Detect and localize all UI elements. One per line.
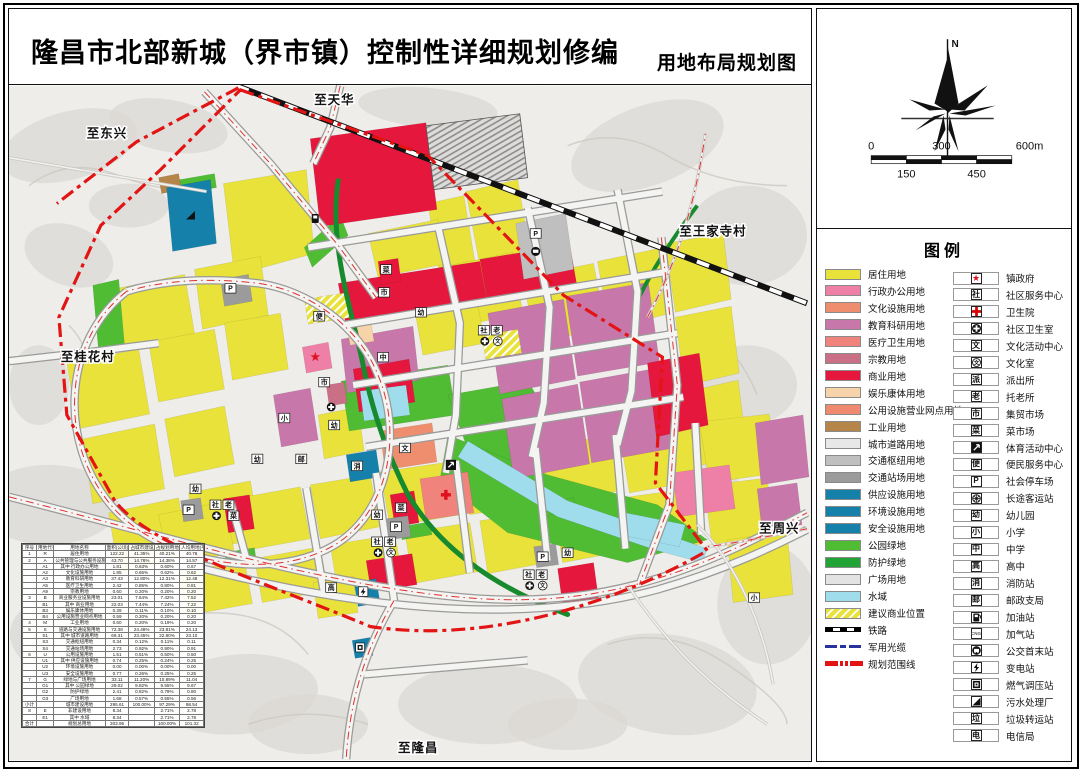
legend-label: 娱乐康体用地 <box>868 386 925 400</box>
legend-label: 规划范围线 <box>868 657 916 671</box>
svg-text:老: 老 <box>492 326 500 335</box>
legend-facility-社区服务中心: 社社区服务中心 <box>953 288 1063 302</box>
scale-label: 450 <box>967 169 985 181</box>
legend-swatch <box>825 421 861 432</box>
legend-label: 行政办公用地 <box>868 284 925 298</box>
svg-text:便: 便 <box>316 312 324 321</box>
map-marker-幼: 幼 <box>562 548 573 557</box>
legend-facility-消防站: 消消防站 <box>953 576 1035 590</box>
legend-label: 派出所 <box>1006 373 1035 387</box>
污水处理厂-icon <box>953 695 999 708</box>
legend-title: 图例 <box>817 237 1071 261</box>
legend-facility-加油站: 加油站 <box>953 610 1035 624</box>
map-marker-sport <box>446 460 455 469</box>
map-marker-P: P <box>537 552 548 561</box>
legend-facility-公交首末站: 公交首末站 <box>953 644 1054 658</box>
map-marker-消: 消 <box>352 461 363 470</box>
legend-swatch <box>825 302 861 313</box>
legend-swatch <box>825 285 861 296</box>
map-marker-老: 老 <box>385 537 396 546</box>
svg-text:小: 小 <box>280 413 288 422</box>
legend-facility-镇政府: ★镇政府 <box>953 271 1035 285</box>
legend-item-环境设施用地: 环境设施用地 <box>825 504 925 518</box>
map-marker-文: 文 <box>493 337 502 346</box>
legend-facility-文化室: 文文化室 <box>953 356 1035 370</box>
legend-label: 交通站场用地 <box>868 470 925 484</box>
map-marker-bus <box>531 247 540 256</box>
legend-item-防护绿地: 防护绿地 <box>825 555 906 569</box>
legend-swatch <box>825 336 861 347</box>
road-label: 至王家寺村 <box>679 223 746 238</box>
svg-text:消: 消 <box>354 461 361 470</box>
svg-text:P: P <box>186 507 191 514</box>
legend-facility-集贸市场: 市集贸市场 <box>953 407 1044 421</box>
map-marker-老: 老 <box>223 500 234 509</box>
planning-map-sheet: 隆昌市北部新城（界市镇）控制性详细规划修编 用地布局规划图 PPPPP幼幼幼幼幼… <box>0 0 1080 770</box>
派出所-icon: 派 <box>953 373 999 386</box>
legend-swatch <box>825 387 861 398</box>
legend-swatch <box>825 404 861 415</box>
svg-text:幼: 幼 <box>254 454 261 463</box>
长途客运站-icon <box>953 492 999 505</box>
集贸市场-icon: 市 <box>953 407 999 420</box>
legend-item-教育科研用地: 教育科研用地 <box>825 318 925 332</box>
legend-label: 中学 <box>1006 542 1025 556</box>
legend-swatch <box>825 624 861 635</box>
legend-swatch <box>825 353 861 364</box>
map-marker-oplus <box>212 511 221 520</box>
legend-label: 消防站 <box>1006 576 1035 590</box>
north-label: N <box>952 39 959 50</box>
svg-text:邮: 邮 <box>298 454 305 463</box>
map-marker-便: 便 <box>314 312 325 321</box>
legend-item-铁路: 铁路 <box>825 623 887 637</box>
scale-label: 150 <box>897 169 915 181</box>
文化活动中心-icon: 文 <box>953 339 999 352</box>
legend-label: 水域 <box>868 589 887 603</box>
table-header: 占城市建设用地比例(%) <box>129 545 154 551</box>
legend-label: 污水处理厂 <box>1006 695 1054 709</box>
map-marker-邮: 邮 <box>296 454 307 463</box>
legend-swatch <box>825 438 861 449</box>
map-marker-P: P <box>530 229 541 238</box>
map-marker-社: 社 <box>210 500 221 509</box>
legend-label: 工业用地 <box>868 420 906 434</box>
legend-facility-污水处理厂: 污水处理厂 <box>953 695 1054 709</box>
map-marker-文: 文 <box>400 443 411 452</box>
svg-text:文: 文 <box>495 337 501 345</box>
legend-item-城市道路用地: 城市道路用地 <box>825 437 925 451</box>
map-marker-P: P <box>225 284 236 293</box>
map-marker-社: 社 <box>372 537 383 546</box>
legend-item-娱乐康体用地: 娱乐康体用地 <box>825 386 925 400</box>
体育活动中心-icon <box>953 441 999 454</box>
legend-facility-垃圾转运站: 垃垃圾转运站 <box>953 712 1054 726</box>
legend-facility-长途客运站: 长途客运站 <box>953 491 1054 505</box>
legend-swatch <box>825 557 861 568</box>
road-label: 至周兴 <box>759 521 799 536</box>
legend-facility-菜市场: 菜菜市场 <box>953 424 1035 438</box>
page-title: 隆昌市北部新城（界市镇）控制性详细规划修编 <box>31 31 619 70</box>
svg-text:老: 老 <box>537 570 545 579</box>
legend-facility-社会停车场: P社会停车场 <box>953 474 1054 488</box>
legend-label: 体育活动中心 <box>1006 441 1063 455</box>
变电站-icon <box>953 661 999 674</box>
legend-facility-加气站: CNG加气站 <box>953 627 1035 641</box>
map-marker-幼: 幼 <box>252 454 263 463</box>
legend-item-交通站场用地: 交通站场用地 <box>825 470 925 484</box>
legend-label: 社会停车场 <box>1006 474 1054 488</box>
卫生院-icon <box>953 305 999 318</box>
镇政府-icon: ★ <box>953 272 999 285</box>
legend-label: 广场用地 <box>868 572 906 586</box>
legend-item-宗教用地: 宗教用地 <box>825 352 906 366</box>
map-marker-老: 老 <box>536 570 547 579</box>
legend-facility-便民服务中心: 便便民服务中心 <box>953 457 1063 471</box>
map-marker-幼: 幼 <box>372 510 383 519</box>
legend-item-建议商业位置: 建议商业位置 <box>825 606 925 620</box>
legend-facility-燃气调压站: 燃气调压站 <box>953 678 1054 692</box>
balance-table: 序号用地代号用地名称面积(公顷)占城市建设用地比例(%)占规划用地比例(%)人均… <box>22 544 204 727</box>
消防站-icon: 消 <box>953 577 999 590</box>
社区服务中心-icon: 社 <box>953 288 999 301</box>
legend-facility-幼儿园: 幼幼儿园 <box>953 508 1035 522</box>
legend-swatch <box>825 370 861 381</box>
legend-item-文化设施用地: 文化设施用地 <box>825 301 925 315</box>
table-row: 合计规划总用地303.95100.00%101.32 <box>23 720 204 726</box>
map-marker-文: 文 <box>387 548 396 557</box>
legend-facility-邮政支局: 邮邮政支局 <box>953 593 1044 607</box>
legend-swatch <box>825 658 861 669</box>
scale-bar: 0300600m150450 <box>868 141 1043 181</box>
legend-label: 供应设施用地 <box>868 487 925 501</box>
legend-swatch <box>825 608 861 619</box>
legend-label: 社区服务中心 <box>1006 288 1063 302</box>
svg-text:文: 文 <box>388 549 394 557</box>
legend-label: 燃气调压站 <box>1006 678 1054 692</box>
legend-label: 公用设施营业网点用地 <box>868 403 963 417</box>
map-marker-社: 社 <box>523 570 534 579</box>
legend-swatch <box>825 540 861 551</box>
legend-label: 小学 <box>1006 525 1025 539</box>
legend-label: 居住用地 <box>868 267 906 281</box>
legend-label: 文化设施用地 <box>868 301 925 315</box>
map-marker-菜: 菜 <box>228 511 239 520</box>
scale-label: 0 <box>868 141 874 153</box>
legend-label: 铁路 <box>868 623 887 637</box>
legend-label: 安全设施用地 <box>868 521 925 535</box>
title-bar: 隆昌市北部新城（界市镇）控制性详细规划修编 用地布局规划图 <box>8 8 812 86</box>
road-label: 至天华 <box>314 92 354 107</box>
legend-facility-体育活动中心: 体育活动中心 <box>953 441 1063 455</box>
legend-label: 集贸市场 <box>1006 407 1044 421</box>
legend-label: 高中 <box>1006 559 1025 573</box>
svg-text:社: 社 <box>373 537 381 546</box>
map-marker-市: 市 <box>379 288 390 297</box>
legend-label: 电信局 <box>1006 729 1035 743</box>
road-label: 至隆昌 <box>398 740 438 755</box>
legend-item-居住用地: 居住用地 <box>825 267 906 281</box>
land-use-balance-table: 序号用地代号用地名称面积(公顷)占城市建设用地比例(%)占规划用地比例(%)人均… <box>21 543 205 728</box>
中学-icon: 中 <box>953 543 999 556</box>
map-marker-star: ★ <box>310 352 320 364</box>
map-marker-oplus <box>480 337 489 346</box>
legend-item-交通枢纽用地: 交通枢纽用地 <box>825 453 925 467</box>
svg-text:菜: 菜 <box>397 503 405 512</box>
svg-text:文: 文 <box>540 581 546 589</box>
table-header: 面积(公顷) <box>105 545 129 551</box>
svg-text:中: 中 <box>380 353 387 362</box>
north-arrow: N <box>901 39 995 155</box>
map-panel: PPPPP幼幼幼幼幼幼小小中高社老文社老文社老文社老菜市市菜菜便邮消文★至天华至… <box>8 84 812 762</box>
map-marker-社: 社 <box>478 325 489 334</box>
legend-label: 菜市场 <box>1006 424 1035 438</box>
legend-facility-派出所: 派派出所 <box>953 373 1035 387</box>
legend-item-水域: 水域 <box>825 589 887 603</box>
公交首末站-icon <box>953 644 999 657</box>
map-marker-小: 小 <box>749 593 760 602</box>
legend-label: 宗教用地 <box>868 352 906 366</box>
svg-text:幼: 幼 <box>374 510 381 519</box>
map-marker-bolt <box>358 587 367 596</box>
map-marker-老: 老 <box>491 325 502 334</box>
legend-facility-中学: 中中学 <box>953 542 1025 556</box>
scale-label: 300 <box>932 141 950 153</box>
托老所-icon: 老 <box>953 390 999 403</box>
road-label: 至桂花村 <box>61 349 115 364</box>
legend-label: 防护绿地 <box>868 555 906 569</box>
legend-label: 卫生院 <box>1006 305 1035 319</box>
drawing-name: 用地布局规划图 <box>657 48 797 75</box>
svg-text:文: 文 <box>973 359 979 367</box>
legend-swatch <box>825 489 861 500</box>
legend-label: 交通枢纽用地 <box>868 453 925 467</box>
svg-text:P: P <box>533 231 538 238</box>
legend-label: 教育科研用地 <box>868 318 925 332</box>
legend-label: 加气站 <box>1006 627 1035 641</box>
legend-item-商业用地: 商业用地 <box>825 369 906 383</box>
map-marker-oplus <box>327 403 336 412</box>
north-scale-panel: N0300600m150450 <box>816 8 1072 230</box>
legend-label: 镇政府 <box>1006 271 1035 285</box>
legend-swatch <box>825 591 861 602</box>
legend-label: 建议商业位置 <box>868 606 925 620</box>
legend-label: 文化活动中心 <box>1006 339 1063 353</box>
高中-icon: 高 <box>953 560 999 573</box>
svg-text:幼: 幼 <box>564 548 571 557</box>
road-label: 至东兴 <box>87 126 127 141</box>
legend-item-广场用地: 广场用地 <box>825 572 906 586</box>
svg-text:高: 高 <box>328 583 335 592</box>
legend-facility-文化活动中心: 文文化活动中心 <box>953 339 1063 353</box>
svg-text:P: P <box>228 286 233 293</box>
map-marker-pump <box>312 214 319 223</box>
legend-label: 环境设施用地 <box>868 504 925 518</box>
legend-facility-小学: 小小学 <box>953 525 1025 539</box>
map-marker-幼: 幼 <box>415 308 426 317</box>
加油站-icon <box>953 611 999 624</box>
legend-facility-变电站: 变电站 <box>953 661 1035 675</box>
map-marker-高: 高 <box>326 583 337 592</box>
legend-label: 变电站 <box>1006 661 1035 675</box>
legend-label: 邮政支局 <box>1006 593 1044 607</box>
legend-item-行政办公用地: 行政办公用地 <box>825 284 925 298</box>
小学-icon: 小 <box>953 526 999 539</box>
legend-item-安全设施用地: 安全设施用地 <box>825 521 925 535</box>
legend-label: 城市道路用地 <box>868 437 925 451</box>
legend-facility-卫生院: 卫生院 <box>953 305 1035 319</box>
svg-text:文: 文 <box>402 443 410 452</box>
legend-item-军用光缆: 军用光缆 <box>825 640 906 654</box>
table-header: 占规划用地比例(%) <box>154 545 179 551</box>
map-marker-gas <box>356 643 365 652</box>
svg-text:社: 社 <box>211 500 219 509</box>
燃气调压站-icon <box>953 678 999 691</box>
svg-text:市: 市 <box>321 377 328 386</box>
compass-and-scalebar: N0300600m150450 <box>817 9 1071 229</box>
legend-label: 文化室 <box>1006 356 1035 370</box>
legend-item-规划范围线: 规划范围线 <box>825 657 916 671</box>
电信局-icon: 电 <box>953 729 999 742</box>
社区卫生室-icon <box>953 322 999 335</box>
legend-swatch <box>825 269 861 280</box>
legend-panel: 图例 居住用地行政办公用地文化设施用地教育科研用地医疗卫生用地宗教用地商业用地娱… <box>816 228 1072 762</box>
map-marker-小: 小 <box>279 413 290 422</box>
svg-text:幼: 幼 <box>192 484 199 493</box>
map-marker-P: P <box>183 505 194 514</box>
legend-label: 公园绿地 <box>868 538 906 552</box>
map-marker-菜: 菜 <box>396 503 407 512</box>
文化室-icon: 文 <box>953 356 999 369</box>
加气站-icon: CNG <box>953 627 999 640</box>
legend-facility-托老所: 老托老所 <box>953 390 1035 404</box>
legend-label: 长途客运站 <box>1006 491 1054 505</box>
legend-swatch <box>825 319 861 330</box>
legend-swatch <box>825 506 861 517</box>
垃圾转运站-icon: 垃 <box>953 712 999 725</box>
map-marker-幼: 幼 <box>329 420 340 429</box>
legend-label: 商业用地 <box>868 369 906 383</box>
legend-label: 托老所 <box>1006 390 1035 404</box>
svg-text:社: 社 <box>479 326 487 335</box>
legend-facility-社区卫生室: 社区卫生室 <box>953 322 1054 336</box>
map-marker-文: 文 <box>538 581 547 590</box>
幼儿园-icon: 幼 <box>953 509 999 522</box>
svg-text:市: 市 <box>381 288 388 297</box>
legend-facility-高中: 高高中 <box>953 559 1025 573</box>
便民服务中心-icon: 便 <box>953 458 999 471</box>
svg-text:P: P <box>540 554 545 561</box>
scale-label: 600m <box>1016 141 1044 153</box>
legend-swatch <box>825 523 861 534</box>
legend-swatch <box>825 574 861 585</box>
svg-text:★: ★ <box>310 352 320 364</box>
legend-facility-电信局: 电电信局 <box>953 729 1035 743</box>
legend-item-公园绿地: 公园绿地 <box>825 538 906 552</box>
svg-text:老: 老 <box>224 500 232 509</box>
legend-label: 社区卫生室 <box>1006 322 1054 336</box>
legend-label: 幼儿园 <box>1006 508 1035 522</box>
map-marker-oplus <box>374 548 383 557</box>
legend-item-公用设施营业网点用地: 公用设施营业网点用地 <box>825 403 963 417</box>
svg-text:菜: 菜 <box>382 265 390 274</box>
邮政支局-icon: 邮 <box>953 594 999 607</box>
svg-text:老: 老 <box>386 537 394 546</box>
svg-text:P: P <box>394 524 399 531</box>
社会停车场-icon: P <box>953 475 999 488</box>
map-marker-市: 市 <box>319 377 330 386</box>
legend-swatch <box>825 455 861 466</box>
svg-text:幼: 幼 <box>331 420 338 429</box>
legend-item-供应设施用地: 供应设施用地 <box>825 487 925 501</box>
map-marker-中: 中 <box>378 352 389 361</box>
svg-text:社: 社 <box>524 570 532 579</box>
table-header: 人均用地(平方米/人) <box>180 545 204 551</box>
map-marker-菜: 菜 <box>381 265 392 274</box>
legend-swatch <box>825 472 861 483</box>
legend-label: 医疗卫生用地 <box>868 335 925 349</box>
legend-label: 公交首末站 <box>1006 644 1054 658</box>
legend-label: 垃圾转运站 <box>1006 712 1054 726</box>
legend-swatch <box>825 641 861 652</box>
legend-label: 军用光缆 <box>868 640 906 654</box>
legend-item-医疗卫生用地: 医疗卫生用地 <box>825 335 925 349</box>
map-marker-oplus <box>525 581 534 590</box>
svg-text:幼: 幼 <box>417 308 424 317</box>
legend-label: 便民服务中心 <box>1006 457 1063 471</box>
svg-text:菜: 菜 <box>229 511 237 520</box>
legend-label: 加油站 <box>1006 610 1035 624</box>
菜市场-icon: 菜 <box>953 424 999 437</box>
map-marker-P: P <box>391 522 402 531</box>
map-marker-幼: 幼 <box>190 484 201 493</box>
svg-text:小: 小 <box>750 593 758 602</box>
table-header: 用地代号 <box>37 545 54 551</box>
legend-item-工业用地: 工业用地 <box>825 420 906 434</box>
